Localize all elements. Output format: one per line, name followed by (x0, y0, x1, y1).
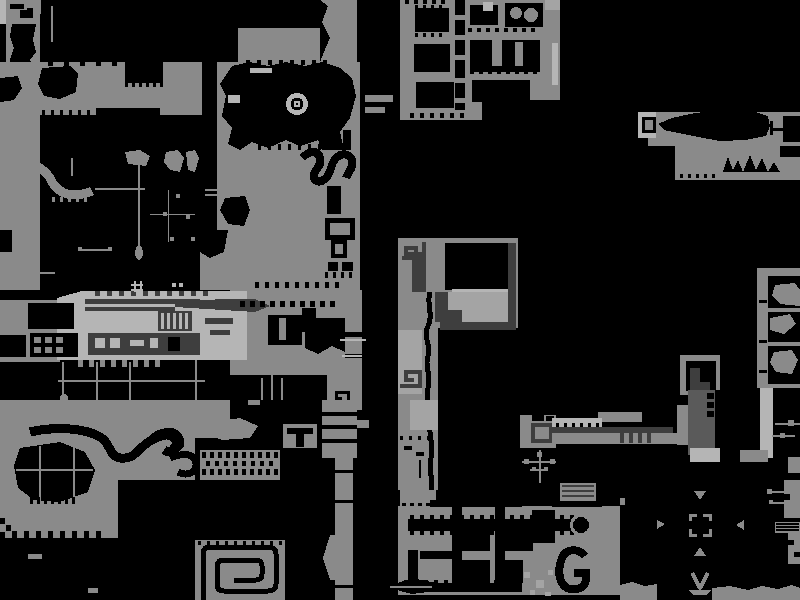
light-line (452, 289, 508, 292)
grid-cell (34, 347, 41, 353)
tower-void (715, 390, 760, 448)
complex-room (472, 80, 530, 102)
machine-stem-core (335, 244, 343, 254)
band-room (125, 62, 163, 83)
wire-node (537, 452, 542, 457)
wire-node (78, 247, 82, 251)
wire-node (550, 459, 555, 464)
shaft-rung (335, 470, 353, 473)
station-window (445, 243, 510, 290)
band-bite (96, 108, 160, 115)
stem-mark (404, 446, 412, 450)
cave-ledge (250, 68, 272, 73)
shaft-rung (322, 425, 357, 429)
walkway-bar (552, 427, 673, 433)
strip-notch (0, 230, 12, 252)
hall-pillar (492, 40, 502, 66)
wire-node (532, 467, 536, 471)
corridor (420, 551, 454, 559)
shaft-window (707, 402, 714, 408)
platform-cap (552, 501, 602, 507)
shaft-rung (335, 585, 353, 588)
edge-bar (365, 95, 393, 102)
stem-mark (416, 452, 424, 456)
room-boulder (524, 8, 538, 22)
light-debris (548, 570, 553, 575)
walkway-ledge (598, 412, 642, 422)
grid-cell (45, 337, 52, 343)
wire-node (193, 409, 199, 414)
h-mark (770, 121, 773, 135)
hash-mark (131, 289, 143, 291)
ladder-rungs (776, 523, 799, 531)
tick-row (255, 282, 339, 288)
platform-room (505, 531, 533, 551)
tower-light-strip (760, 388, 773, 458)
complex-room (414, 44, 450, 72)
machinery-light (110, 338, 120, 348)
grid-cell (34, 337, 41, 343)
shaft-rung (345, 332, 362, 337)
room-pillar (279, 318, 286, 340)
table-leg (296, 434, 304, 447)
wire-node (170, 237, 174, 241)
room-boulder (510, 7, 522, 19)
wing-room (0, 335, 26, 357)
shaft-rung (335, 500, 353, 503)
outpost-cap (532, 414, 544, 421)
light-debris (524, 572, 530, 578)
ledge (788, 457, 800, 473)
checker (0, 518, 5, 524)
tower-foot (690, 448, 720, 462)
game-map-canvas (0, 0, 800, 600)
complex-hall (470, 40, 540, 72)
machinery-light (95, 338, 105, 348)
wire-node (93, 406, 99, 411)
wire-node (544, 467, 548, 471)
edge-notch (794, 552, 800, 557)
wire-node (788, 420, 794, 426)
wire-node (60, 394, 68, 402)
machine-foot (342, 262, 353, 271)
column-foot (740, 450, 768, 462)
grid-cell (56, 337, 63, 343)
outpost-core (535, 427, 549, 439)
edge-notch (788, 540, 794, 545)
shaft-rung (322, 412, 357, 416)
edge-bar (365, 107, 385, 113)
wall-tick (759, 370, 767, 373)
edge-slot (343, 130, 351, 150)
wire-node (186, 215, 190, 219)
hall-pillar (515, 42, 523, 66)
light-debris (545, 592, 551, 596)
game-map-screen (0, 0, 800, 600)
cave-ledge (228, 95, 240, 103)
debris (172, 283, 176, 287)
ledge (357, 420, 369, 428)
wall-tick (759, 340, 767, 343)
column-detail (27, 8, 33, 18)
platform-room (532, 510, 555, 543)
hash-mark (131, 284, 143, 286)
grid-cell (56, 347, 63, 353)
debris (88, 588, 98, 593)
ship-room (28, 303, 74, 329)
complex-room (415, 8, 449, 32)
east-cave (305, 318, 345, 354)
debris (179, 283, 183, 287)
edge-notch (784, 494, 790, 500)
shaft-rung (322, 439, 357, 443)
wire-node (191, 237, 195, 241)
wire-node (163, 212, 167, 216)
complex-room (416, 82, 454, 108)
wire-node (524, 459, 529, 464)
machinery-light (150, 338, 158, 348)
ladder-rungs (562, 485, 594, 497)
checker (0, 532, 5, 538)
chute-rung (455, 55, 465, 60)
machine-box-core (330, 223, 350, 235)
deck-detail (205, 318, 233, 324)
shaft-slot (327, 186, 341, 214)
station-pillar (412, 255, 426, 292)
wall-tick (759, 300, 767, 303)
spur-bracket-core (645, 120, 653, 130)
wire-node (769, 500, 773, 504)
edge-strip (788, 532, 800, 564)
wire-node (108, 247, 112, 251)
chute-rung (455, 98, 465, 103)
platform-chute (495, 531, 505, 583)
light-bar (552, 43, 558, 85)
light-debris (530, 590, 535, 595)
ship-grid-room (30, 333, 78, 357)
machinery-light (130, 340, 144, 346)
debris (620, 498, 625, 505)
wire-node (126, 400, 132, 405)
wire-node (176, 194, 180, 198)
target-ring-dot (296, 103, 299, 106)
corridor-end-hole (573, 517, 589, 533)
debris (28, 554, 42, 559)
ledge (248, 400, 260, 405)
walkway (552, 433, 677, 444)
column-detail (10, 4, 24, 9)
grid-cell (45, 347, 52, 353)
deck-beam (85, 307, 175, 311)
shaft-window (707, 393, 714, 399)
stem-block (410, 400, 438, 430)
shaft-window (707, 411, 714, 417)
h-mark (786, 121, 789, 135)
light-patch (545, 0, 560, 10)
machinery-door (168, 337, 180, 351)
platform-cap (430, 500, 522, 507)
platform-room (462, 560, 490, 583)
table-top (287, 428, 313, 434)
light-patch (483, 2, 493, 11)
platform-room (505, 560, 523, 583)
ledge (205, 400, 227, 406)
station-frame (508, 243, 516, 330)
light-debris (536, 580, 544, 588)
chute-rung (455, 35, 465, 40)
checker (6, 525, 11, 531)
chute-rung (455, 15, 465, 20)
machine-foot (328, 262, 338, 271)
chute-rung (455, 78, 465, 83)
deck-detail (210, 330, 230, 335)
platform-room (462, 531, 490, 551)
station-frame (440, 322, 516, 330)
wire-node (767, 489, 772, 494)
wire-node (780, 433, 785, 438)
tower-shaft (688, 390, 715, 455)
platform-chute (408, 550, 418, 583)
spur-gap (780, 146, 800, 157)
